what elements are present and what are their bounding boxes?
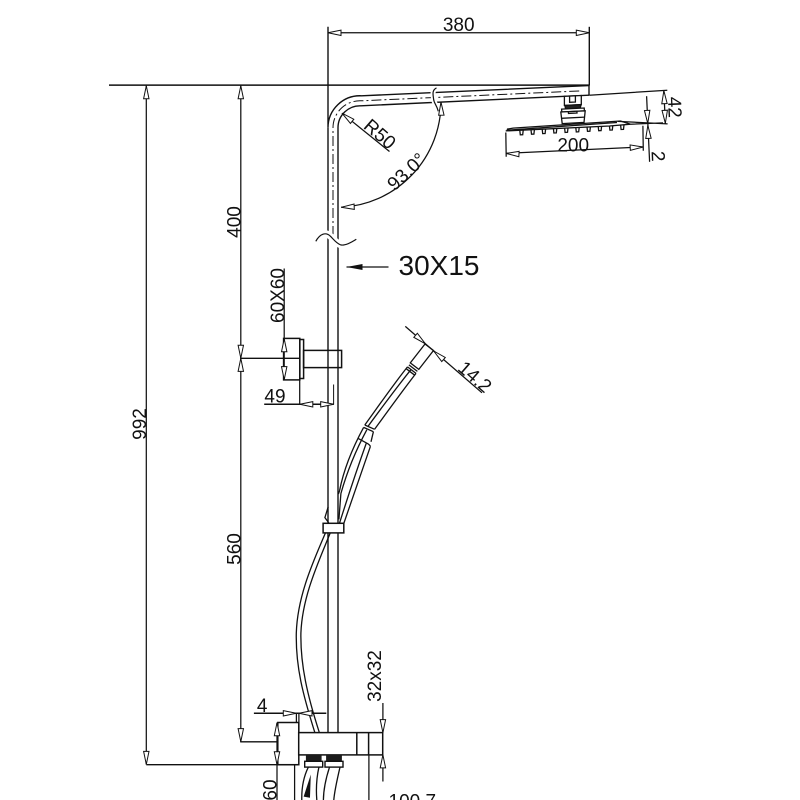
- svg-text:4: 4: [257, 696, 268, 717]
- svg-text:42: 42: [663, 96, 685, 118]
- svg-text:560: 560: [224, 533, 245, 565]
- svg-text:30X15: 30X15: [399, 250, 480, 281]
- svg-text:992: 992: [130, 408, 151, 440]
- svg-text:2: 2: [647, 150, 668, 162]
- svg-text:60: 60: [261, 779, 282, 800]
- svg-text:32x32: 32x32: [365, 650, 386, 702]
- svg-text:49: 49: [264, 387, 285, 408]
- svg-text:200: 200: [557, 135, 589, 156]
- svg-text:100.7: 100.7: [389, 791, 437, 800]
- svg-text:60X60: 60X60: [268, 268, 289, 323]
- svg-text:380: 380: [443, 15, 475, 36]
- svg-text:400: 400: [224, 206, 245, 238]
